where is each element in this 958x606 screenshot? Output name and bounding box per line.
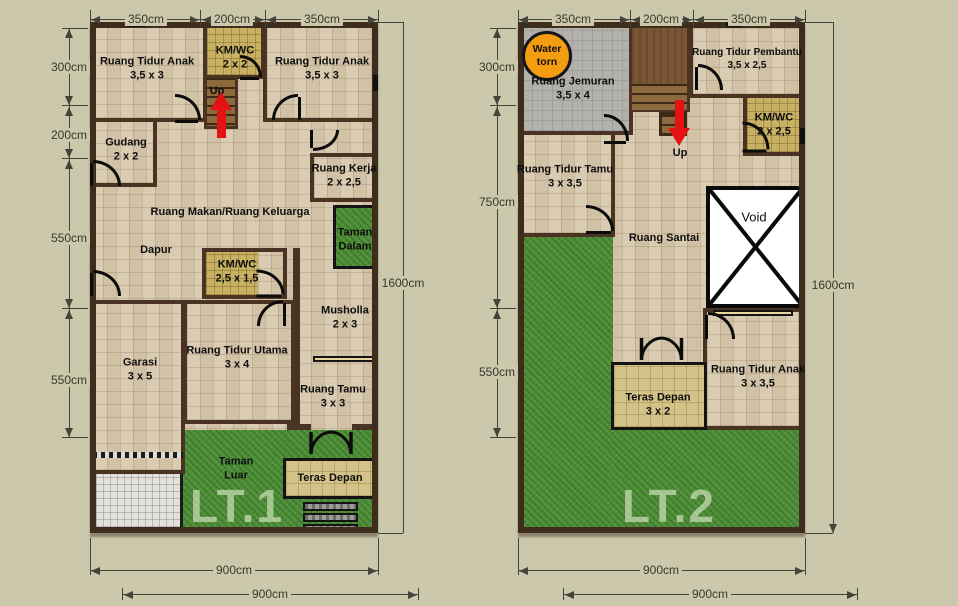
void-opening [706,186,805,308]
dim-arrow [847,591,856,599]
dim-label: 200cm [640,12,682,26]
dim-arrow [493,96,501,105]
dim-label: 900cm [640,563,682,577]
dim-arrow [519,16,528,24]
wall-prayer-column [293,248,300,430]
room-label: Ruang Jemuran3,5 x 4 [531,75,614,104]
dim-arrow [65,149,73,158]
room-label: Teras Depan3 x 2 [625,391,690,420]
dim-arrow [493,107,501,116]
dim-arrow [65,310,73,319]
dim-label: 350cm [552,12,594,26]
dim-arrow [267,16,276,24]
dim-arrow [368,16,377,24]
room-label: Ruang Makan/Ruang Keluarga [151,205,310,219]
room-label: Taman Dalam [332,226,378,255]
dim-ext [805,22,833,23]
room-label: KM/WC2,5 x 1,5 [216,258,259,287]
dim-arrow [795,567,804,575]
dim-arrow [65,160,73,169]
room-label: Teras Depan [297,471,362,485]
dim-ext [857,588,858,600]
dim-ext [378,10,379,22]
dim-arrow [493,428,501,437]
terrace-step [303,513,358,522]
dim-ext [805,10,806,22]
dim-ext [490,437,516,438]
room-label: Dapur [140,243,172,257]
dim-arrow [565,591,574,599]
dim-arrow [202,16,211,24]
dim-label: 300cm [48,60,90,74]
dim-ext [490,105,516,106]
dim-arrow [493,310,501,319]
stairs-up-label: Up [673,146,688,160]
room-label: KM/WC2 x 2,5 [755,111,794,140]
dim-arrow [65,29,73,38]
dim-label: 1600cm [809,278,858,292]
window-mark-right [373,75,378,91]
dim-arrow [695,16,704,24]
dim-label: 550cm [48,231,90,245]
window-living-room [313,356,378,362]
dim-label: 200cm [211,12,253,26]
dim-ext [378,533,403,534]
dim-ext [805,533,833,534]
dim-arrow [829,524,837,533]
dim-ext [62,105,88,106]
dim-arrow [795,16,804,24]
dim-ext [62,308,88,309]
room-label: Ruang Kerja2 x 2,5 [312,162,377,191]
door-arc [93,270,121,296]
dim-arrow [493,299,501,308]
dim-label: 1600cm [379,276,428,290]
dim-arrow [620,16,629,24]
dim-arrow [91,567,100,575]
dim-arrow [124,591,133,599]
dim-arrow [65,96,73,105]
dim-label: 550cm [48,373,90,387]
dim-ext [418,588,419,600]
floor-plan-canvas: Ruang Tidur Anak3,5 x 3 KM/WC2 x 2 Up Ru… [0,0,958,606]
dim-arrow [190,16,199,24]
room-label: Ruang Tidur Anak3 x 3,5 [711,363,805,392]
dim-arrow [91,16,100,24]
dim-ext [805,538,806,575]
room-label: Ruang Tidur Utama3 x 4 [186,344,287,373]
dim-label: 750cm [476,195,518,209]
void-label: Void [741,210,766,227]
water-tank-label: Water torn [525,43,569,68]
garage-gate [93,452,183,458]
dim-arrow [368,567,377,575]
room-label: KM/WC2 x 2 [216,44,255,73]
floorplan-lt1: Ruang Tidur Anak3,5 x 3 KM/WC2 x 2 Up Ru… [90,22,378,533]
dim-arrow [255,16,264,24]
terrace-step [303,524,358,533]
dim-label: 350cm [125,12,167,26]
stairs-direction-arrow-up [210,92,232,138]
room-label: Garasi3 x 5 [123,356,157,385]
dim-label: 900cm [213,563,255,577]
dim-label: 200cm [48,128,90,142]
room-label: Ruang Tamu3 x 3 [300,383,366,412]
wall-living-right [352,424,378,430]
dim-label: 350cm [301,12,343,26]
dim-arrow [493,29,501,38]
double-door-entry-f1 [308,428,354,456]
dim-arrow [65,107,73,116]
dim-label: 300cm [476,60,518,74]
dim-label: 550cm [476,365,518,379]
room-label: Ruang Santai [629,231,699,245]
dim-label: 900cm [689,587,731,601]
room-label: Musholla2 x 3 [321,304,369,333]
room-label: Ruang Tidur Anak3,5 x 3 [275,55,369,84]
lawn-left-strip [520,235,613,533]
dim-ext [490,308,516,309]
dim-label: 350cm [728,12,770,26]
floor-title-lt1: LT.1 [190,479,284,533]
room-label: Gudang2 x 2 [105,136,147,165]
dim-ext [378,22,403,23]
dim-arrow [65,299,73,308]
window-mark-right [800,128,805,144]
stairs-direction-arrow-down [668,100,690,146]
room-label: Ruang Tidur Pembantu3,5 x 2,5 [692,46,802,72]
dim-arrow [519,567,528,575]
floorplan-lt2: Water torn Ruang Jemuran3,5 x 4 Ruang Ti… [518,22,805,533]
room-garage [90,300,185,474]
dim-arrow [683,16,692,24]
dim-ext [62,437,88,438]
dim-arrow [65,428,73,437]
dim-label: 900cm [249,587,291,601]
floor-title-lt2: LT.2 [622,479,716,533]
door-arc [313,130,339,151]
terrace-step [303,502,358,511]
double-door-terrace-f2 [638,334,685,362]
dim-arrow [408,591,417,599]
room-label: Ruang Tidur Tamu3 x 3,5 [517,163,613,192]
room-label: Ruang Tidur Anak3,5 x 3 [100,55,194,84]
water-tank: Water torn [522,31,572,81]
dim-ext [62,158,88,159]
window-child-bedroom [713,310,793,316]
dim-ext [378,538,379,575]
